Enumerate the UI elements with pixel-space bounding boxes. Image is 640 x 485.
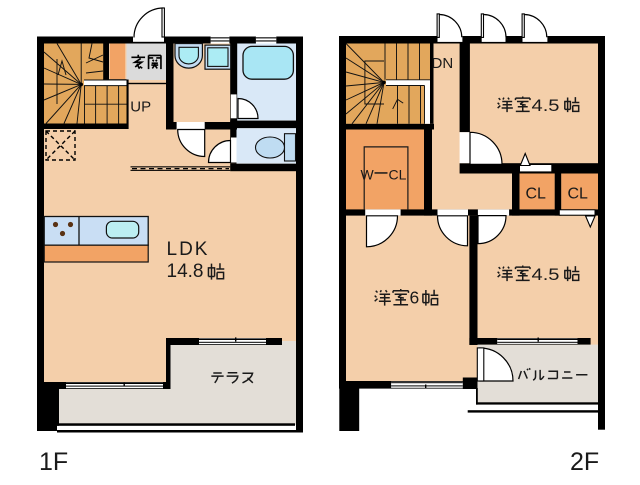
svg-text:W: W	[361, 166, 375, 182]
svg-text:4.5: 4.5	[532, 97, 560, 115]
svg-text:DN: DN	[432, 55, 454, 72]
svg-text:14.8: 14.8	[167, 261, 204, 282]
svg-text:CL: CL	[568, 185, 589, 202]
svg-text:CL: CL	[526, 185, 547, 202]
svg-text:LDK: LDK	[167, 239, 210, 260]
svg-text:1F: 1F	[39, 448, 68, 476]
svg-text:4.5: 4.5	[532, 266, 560, 284]
svg-text:6: 6	[410, 288, 420, 308]
svg-text:CL: CL	[389, 166, 407, 182]
svg-text:UP: UP	[130, 98, 151, 115]
svg-text:2F: 2F	[570, 448, 599, 476]
